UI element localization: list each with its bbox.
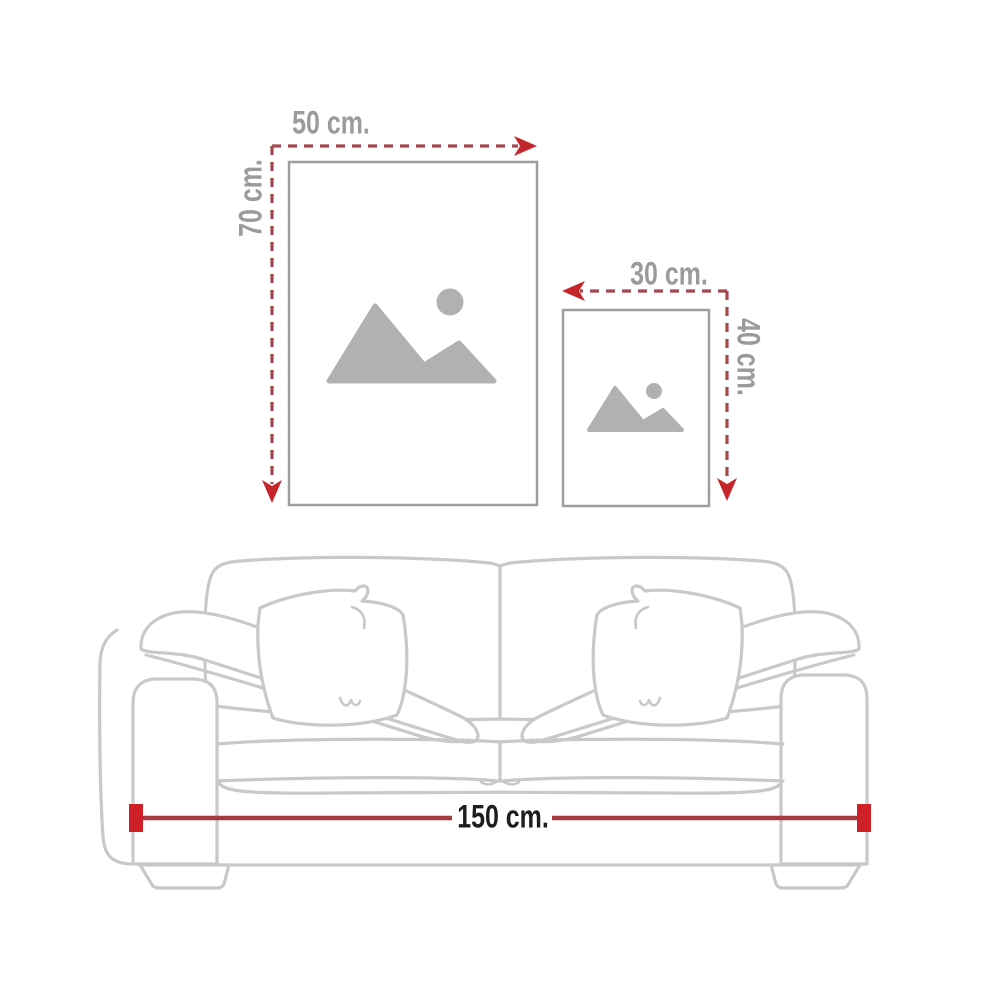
small-picture-frame [563, 310, 709, 506]
sofa-width-label: 150 cm. [457, 799, 549, 836]
small-frame-width-label: 30 cm. [630, 256, 708, 293]
small-frame-height-label: 40 cm. [730, 318, 767, 396]
dimension-end-cap-right [857, 804, 871, 832]
large-frame-height-label: 70 cm. [233, 159, 270, 237]
sun-icon [646, 383, 662, 399]
sofa-left-armrest-outer-edge [100, 630, 130, 864]
sofa-left-foot [140, 865, 229, 888]
large-frame-border [289, 162, 537, 505]
arrow-down-icon [717, 478, 737, 501]
sofa-left-pillow [258, 586, 407, 725]
sofa-right-armrest-panel [781, 675, 867, 864]
small-frame-border [563, 310, 709, 506]
sofa-line-drawing [100, 557, 867, 888]
large-picture-frame [289, 162, 537, 505]
sofa-right-foot [771, 865, 860, 888]
sofa-right-pillow [593, 586, 742, 725]
sun-icon [437, 289, 464, 316]
size-guide-scene [0, 0, 1000, 999]
sofa-base-piping [219, 783, 781, 793]
dimension-end-cap-left [129, 804, 143, 832]
size-guide-infographic: 50 cm. 70 cm. 30 cm. 40 cm. 150 cm. [0, 0, 1000, 999]
sofa-left-armrest-panel [133, 679, 217, 864]
large-frame-width-label: 50 cm. [292, 105, 370, 142]
